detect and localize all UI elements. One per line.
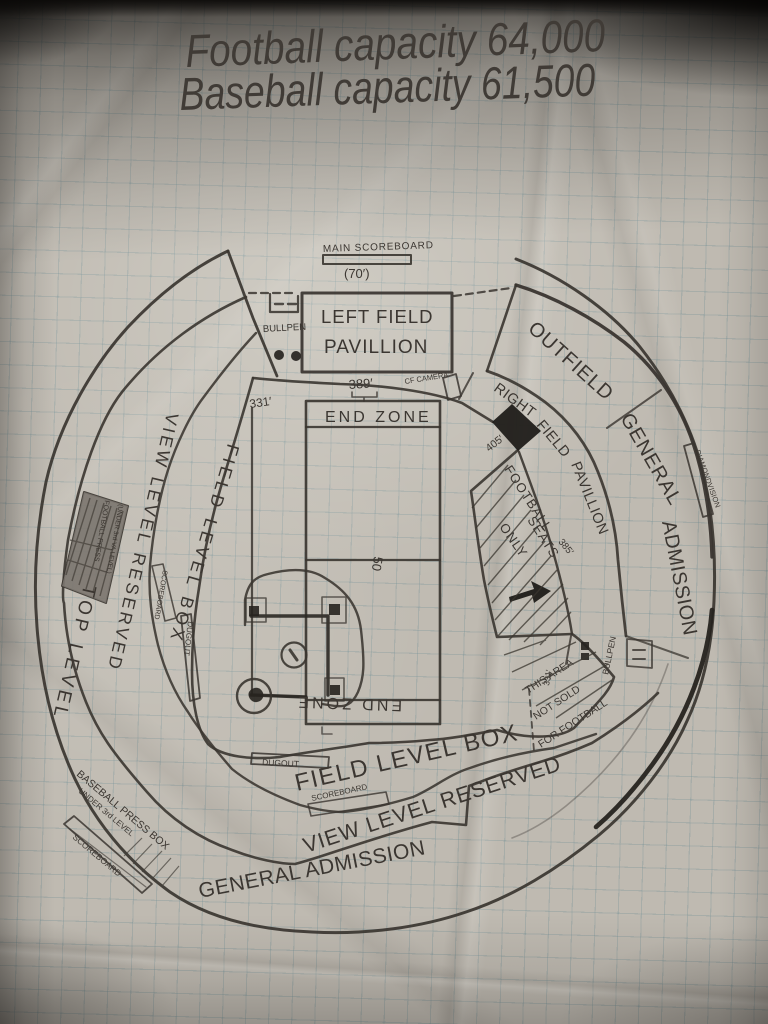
svg-text:DUGOUT: DUGOUT	[262, 757, 299, 769]
svg-text:331′: 331′	[248, 394, 273, 411]
svg-text:BULLPEN: BULLPEN	[600, 635, 618, 675]
svg-text:ADMISSION: ADMISSION	[657, 519, 701, 638]
svg-text:(70′): (70′)	[344, 266, 370, 281]
svg-text:331′: 331′	[541, 669, 554, 687]
svg-text:PAVILLION: PAVILLION	[324, 337, 428, 358]
svg-text:TOP LEVEL: TOP LEVEL	[48, 583, 100, 723]
svg-text:LEFT FIELD: LEFT FIELD	[321, 306, 433, 327]
svg-text:GENERAL: GENERAL	[616, 410, 686, 510]
svg-text:PAVILLION: PAVILLION	[567, 460, 611, 538]
svg-text:BASEBALL PRESS BOX: BASEBALL PRESS BOX	[74, 768, 171, 852]
svg-text:405′: 405′	[483, 433, 506, 454]
svg-text:END ZONE: END ZONE	[295, 693, 402, 714]
svg-text:MAIN SCOREBOARD: MAIN SCOREBOARD	[323, 240, 434, 255]
svg-text:50: 50	[369, 556, 386, 573]
svg-text:OUTFIELD: OUTFIELD	[524, 317, 618, 405]
svg-text:FIELD LEVEL BOX: FIELD LEVEL BOX	[165, 442, 243, 646]
svg-text:SCOREBOARD: SCOREBOARD	[71, 832, 124, 879]
svg-text:389′: 389′	[348, 375, 374, 392]
svg-text:BULLPEN: BULLPEN	[263, 322, 307, 335]
svg-text:END ZONE: END ZONE	[325, 409, 432, 426]
